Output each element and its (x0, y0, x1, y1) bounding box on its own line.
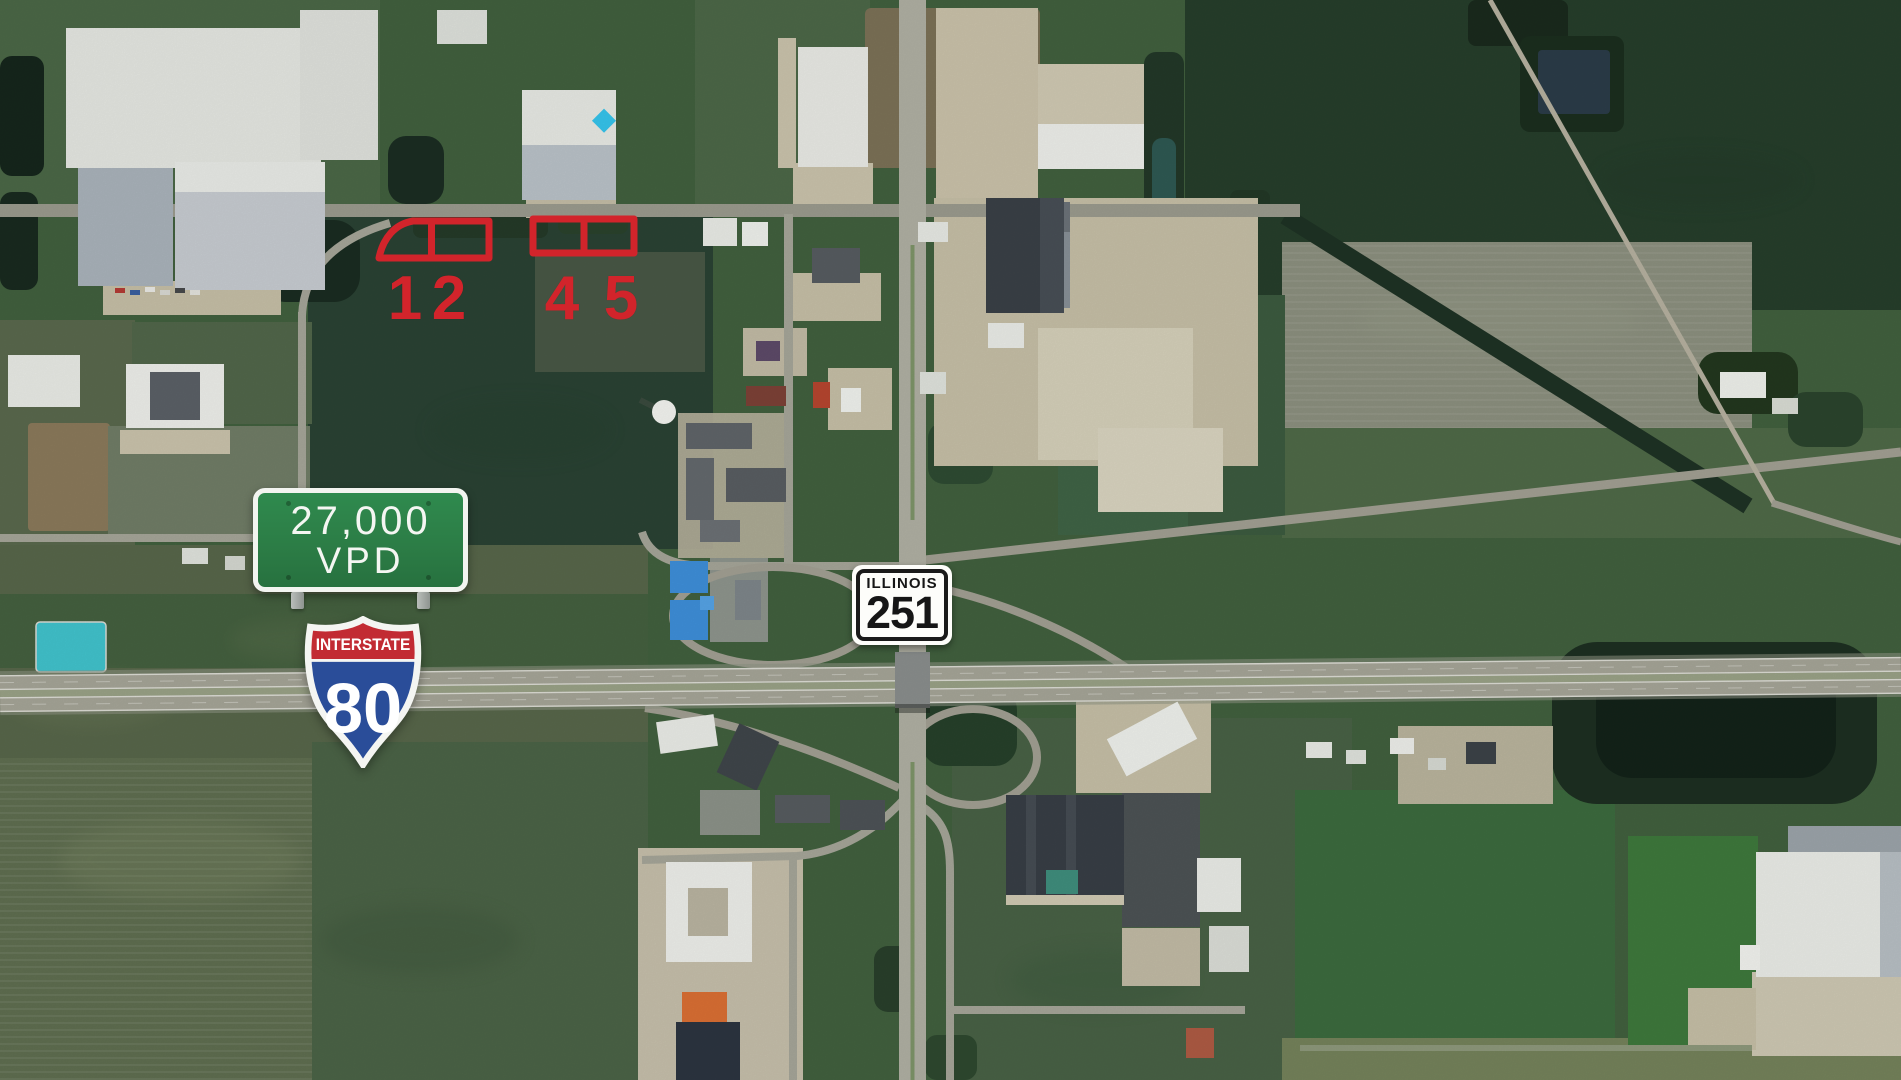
traffic-count-sign: 27,000 VPD (253, 488, 468, 592)
illinois-251-marker: ILLINOIS 251 (852, 565, 952, 645)
interstate-80-shield: INTERSTATE 80 (297, 616, 429, 768)
sign-post-left (291, 592, 304, 609)
shield-route-number: 80 (324, 669, 402, 748)
parcel-number-2: 2 (427, 268, 471, 330)
aerial-map-screenshot: 1 2 4 5 27,000 VPD INTERSTATE 80 ILLINOI… (0, 0, 1901, 1080)
traffic-count-value: 27,000 (290, 500, 430, 542)
parcel-number-5: 5 (599, 268, 643, 330)
shield-interstate-label: INTERSTATE (316, 636, 411, 654)
sign-post-right (417, 592, 430, 609)
route-marker-number: 251 (866, 592, 938, 635)
parcel-number-4: 4 (540, 268, 584, 330)
traffic-count-unit: VPD (316, 542, 404, 581)
parcel-number-1: 1 (383, 268, 427, 330)
